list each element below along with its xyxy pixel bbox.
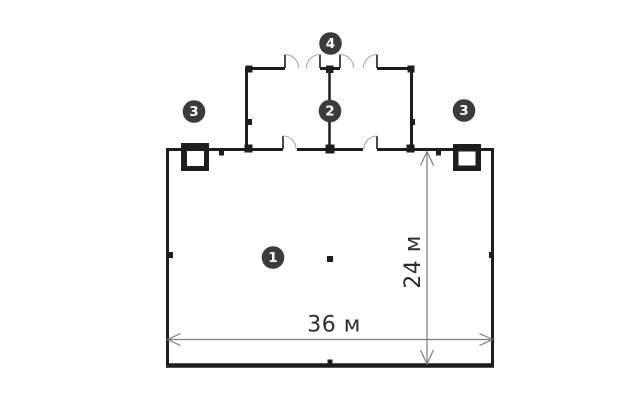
wall-tick: [407, 145, 415, 153]
door-swing-arc: [340, 55, 354, 69]
height-dimension-label: 24 м: [401, 235, 426, 289]
wall-tick: [246, 66, 253, 73]
marker-number: 2: [325, 104, 334, 120]
floor-plan-drawing: 36 м 24 м 1 2 3 3 4: [0, 0, 640, 420]
marker-right-tower: 3: [453, 99, 476, 122]
wall-tick: [408, 66, 415, 73]
wall-tick: [489, 252, 494, 258]
wall-tick: [219, 151, 224, 156]
wall-tick: [328, 360, 333, 365]
wall-tick: [245, 145, 253, 153]
marker-main-hall: 1: [262, 246, 285, 269]
door-swing-arc: [285, 55, 299, 69]
marker-entrance: 4: [319, 32, 342, 55]
height-dimension: 24 м: [401, 152, 434, 365]
wall-tick: [436, 151, 441, 156]
wall-tick: [410, 119, 415, 125]
width-dimension: 36 м: [168, 313, 493, 346]
door-swing-arc: [283, 136, 296, 149]
marker-number: 3: [189, 104, 198, 120]
door-swing-arc: [307, 55, 321, 69]
marker-number: 1: [268, 250, 277, 266]
left-tower-inner: [187, 151, 204, 166]
marker-left-tower: 3: [183, 100, 206, 123]
wall-tick: [169, 252, 174, 258]
marker-number: 4: [326, 36, 335, 52]
right-tower-inner: [459, 152, 476, 166]
hall-center-column: [327, 256, 333, 262]
door-swing-arc: [364, 136, 377, 149]
marker-number: 3: [459, 103, 468, 119]
door-swing-arc: [364, 55, 378, 69]
wall-tick: [326, 145, 335, 154]
wall-tick: [326, 66, 334, 74]
wall-tick: [247, 119, 252, 125]
right-tower: [453, 144, 481, 171]
width-dimension-label: 36 м: [307, 313, 361, 338]
floor-plan-canvas: 36 м 24 м 1 2 3 3 4: [0, 0, 640, 420]
marker-vestibule: 2: [319, 100, 342, 123]
left-tower: [181, 143, 209, 171]
